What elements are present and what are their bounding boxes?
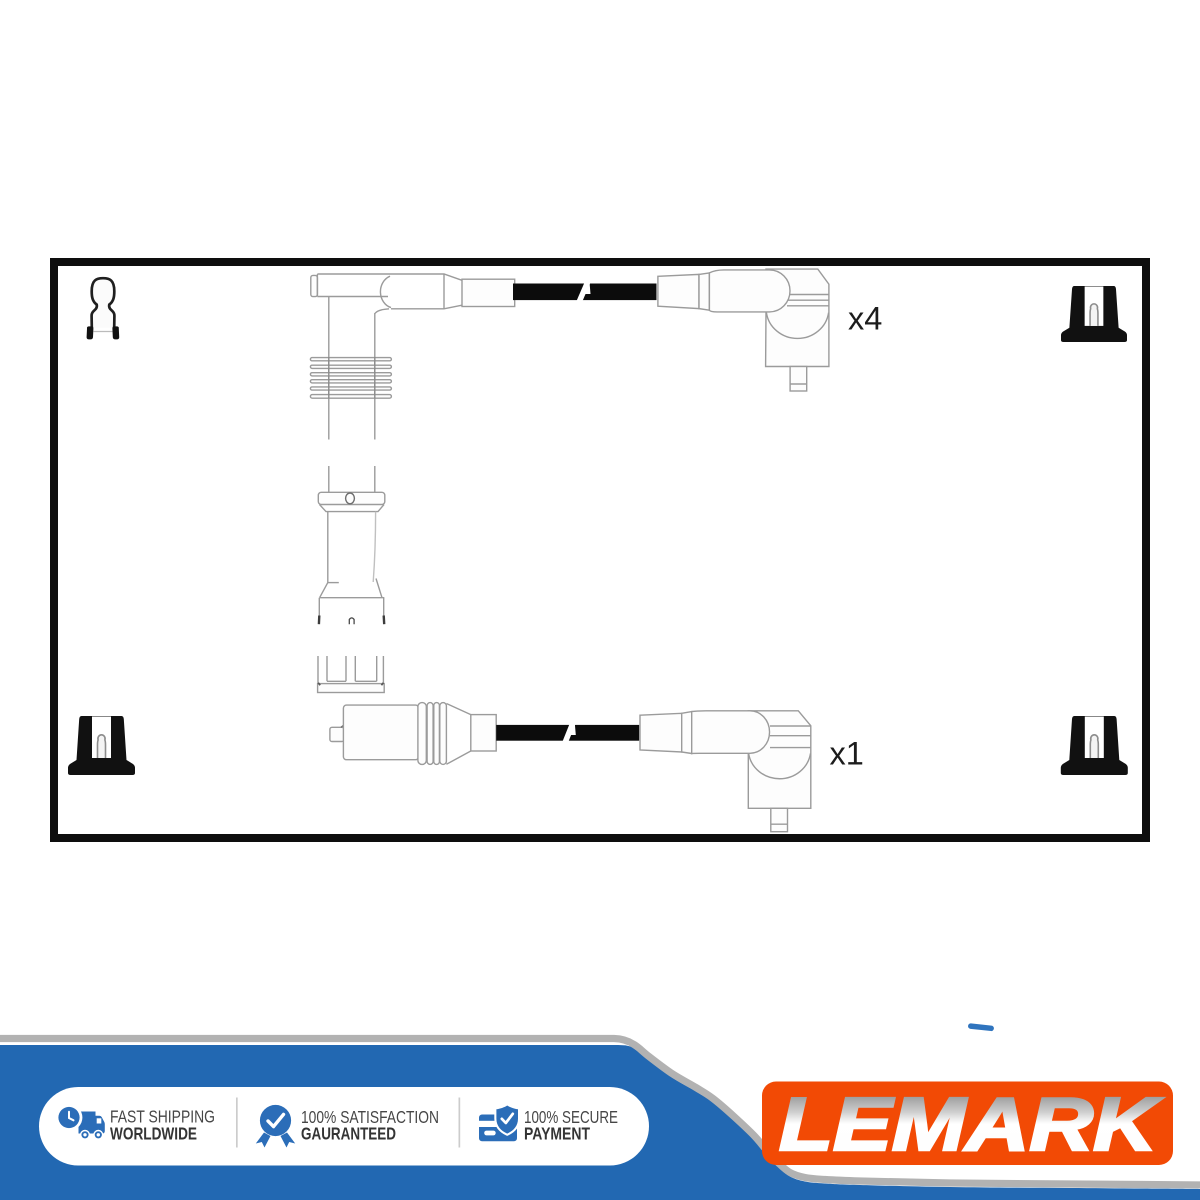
svg-text:WORLDWIDE: WORLDWIDE (110, 1124, 197, 1144)
svg-text:PAYMENT: PAYMENT (524, 1124, 590, 1144)
svg-text:x1: x1 (830, 736, 864, 772)
svg-text:LEMARK: LEMARK (779, 1082, 1163, 1166)
svg-text:x4: x4 (848, 301, 882, 337)
svg-text:GAURANTEED: GAURANTEED (301, 1124, 396, 1144)
